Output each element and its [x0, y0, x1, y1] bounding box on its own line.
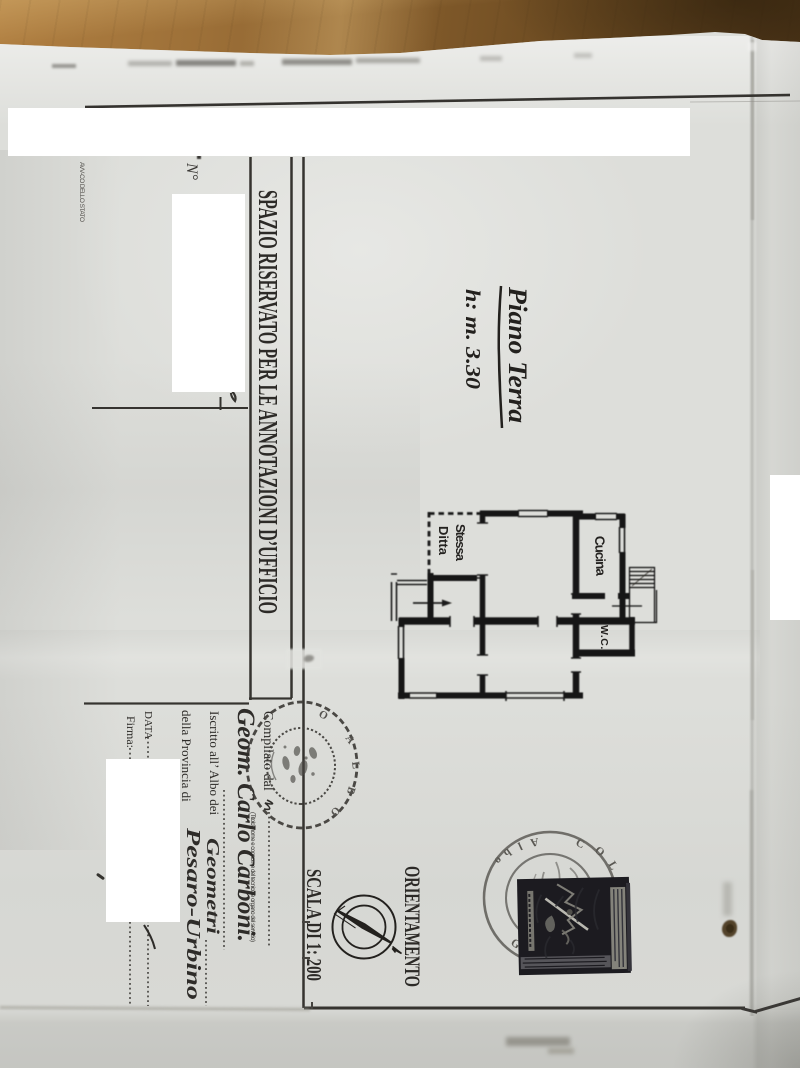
svg-text:O: O [328, 804, 343, 819]
svg-text:L: L [349, 761, 362, 770]
svg-text:della Provincia di: della Provincia di [179, 710, 194, 802]
svg-text:Iscritto all’ Albo dei: Iscritto all’ Albo dei [207, 711, 222, 815]
svg-text:W.C.: W.C. [598, 625, 610, 650]
svg-text:Geom. Carlo Carboni.: Geom. Carlo Carboni. [232, 708, 259, 942]
svg-text:O: O [592, 844, 607, 859]
svg-text:Geometri: Geometri [203, 838, 223, 934]
svg-text:Pesaro-Urbino: Pesaro-Urbino [182, 827, 203, 1001]
svg-text:Ditta: Ditta [436, 526, 451, 556]
svg-text:SPAZIO RISERVATO PER LE ANNOTA: SPAZIO RISERVATO PER LE ANNOTAZIONI D’UF… [252, 190, 282, 614]
svg-text:AVV-CO DELLO STATO: AVV-CO DELLO STATO [78, 162, 85, 222]
svg-text:O: O [317, 708, 331, 723]
svg-text:l: l [516, 839, 524, 851]
svg-text:DATA: DATA [142, 711, 154, 740]
svg-text:Stessa: Stessa [453, 524, 468, 562]
svg-text:L: L [605, 860, 619, 873]
svg-text:SCALA DI 1: 200: SCALA DI 1: 200 [302, 869, 326, 981]
svg-text:C: C [574, 837, 587, 851]
svg-text:N°: N° [183, 162, 200, 181]
svg-text:ORIENTAMENTO: ORIENTAMENTO [400, 866, 425, 987]
svg-text:Cucina: Cucina [592, 536, 608, 577]
svg-text:h: m. 3.30: h: m. 3.30 [461, 289, 485, 390]
svg-text:Firma:: Firma: [124, 716, 138, 748]
svg-text:Piano Terra: Piano Terra [503, 286, 532, 423]
svg-text:A: A [529, 835, 540, 848]
